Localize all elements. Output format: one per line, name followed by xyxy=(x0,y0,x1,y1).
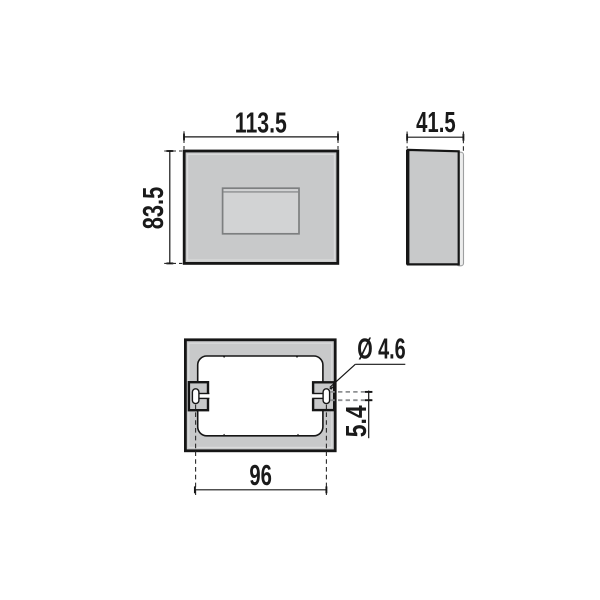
svg-text:Ø 4.6: Ø 4.6 xyxy=(357,333,406,365)
svg-text:5.4: 5.4 xyxy=(341,405,373,437)
svg-text:96: 96 xyxy=(249,460,272,492)
svg-text:41.5: 41.5 xyxy=(416,107,456,139)
svg-text:83.5: 83.5 xyxy=(138,187,170,230)
svg-text:113.5: 113.5 xyxy=(235,107,287,139)
